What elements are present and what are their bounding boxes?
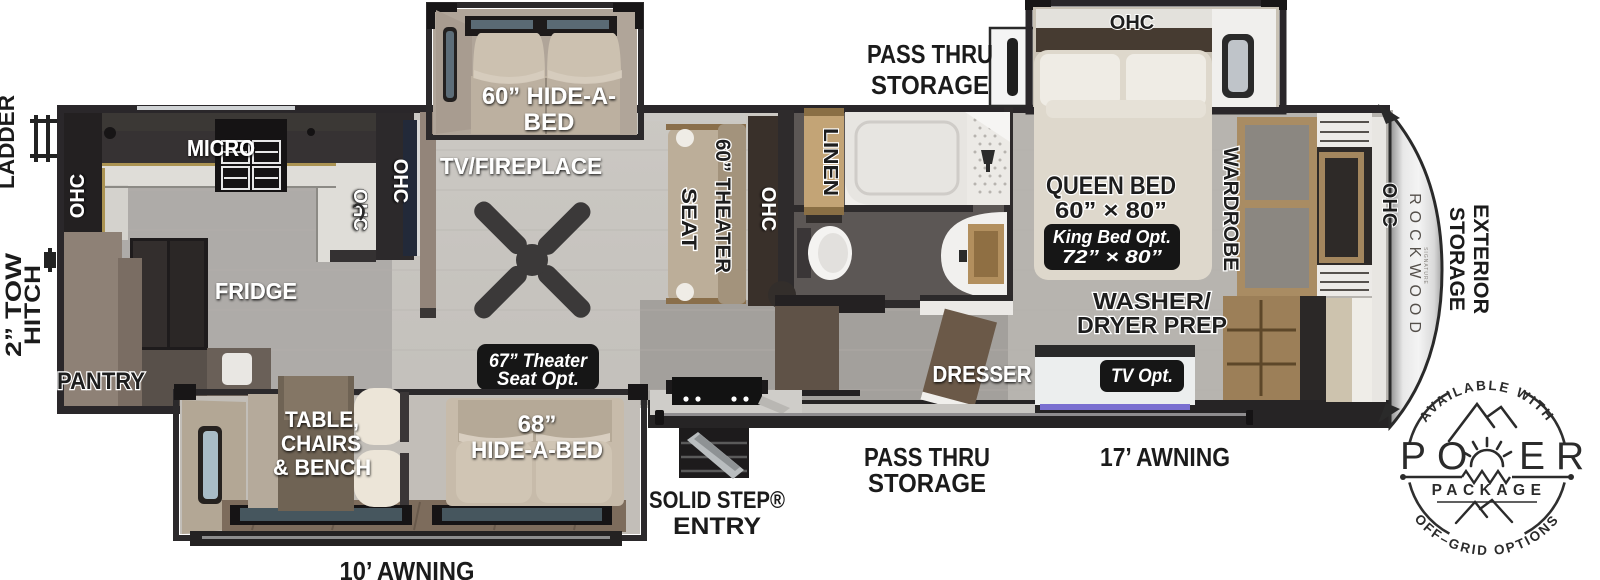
svg-text:King Bed Opt.: King Bed Opt.: [1053, 227, 1171, 247]
svg-text:ENTRY: ENTRY: [673, 513, 761, 540]
svg-text:TABLE,: TABLE,: [285, 407, 359, 432]
svg-text:SEAT: SEAT: [677, 188, 700, 250]
svg-text:MICRO: MICRO: [187, 135, 255, 161]
svg-text:STORAGE: STORAGE: [1445, 207, 1468, 311]
svg-text:STORAGE: STORAGE: [868, 468, 986, 498]
svg-text:& BENCH: & BENCH: [273, 455, 371, 480]
svg-text:TV Opt.: TV Opt.: [1111, 366, 1173, 387]
svg-text:68”: 68”: [518, 411, 557, 438]
svg-text:EXTERIOR: EXTERIOR: [1469, 204, 1492, 314]
svg-text:HITCH: HITCH: [20, 265, 45, 345]
svg-text:DRESSER: DRESSER: [933, 361, 1032, 387]
svg-text:60” × 80”: 60” × 80”: [1055, 197, 1167, 223]
svg-text:Seat Opt.: Seat Opt.: [497, 369, 579, 390]
svg-text:OHC: OHC: [389, 159, 411, 203]
svg-text:OHC: OHC: [1378, 183, 1400, 227]
svg-text:60” HIDE-A-: 60” HIDE-A-: [482, 83, 616, 110]
svg-text:60” THEATER: 60” THEATER: [711, 139, 734, 273]
svg-text:QUEEN BED: QUEEN BED: [1046, 172, 1176, 200]
svg-text:DRYER PREP: DRYER PREP: [1077, 312, 1227, 338]
svg-text:PASS THRU: PASS THRU: [867, 39, 993, 69]
svg-text:10’ AWNING: 10’ AWNING: [340, 556, 475, 580]
svg-text:FRIDGE: FRIDGE: [215, 278, 297, 304]
svg-text:BED: BED: [524, 109, 575, 136]
svg-text:SIGNATURE: SIGNATURE: [1422, 247, 1428, 285]
svg-text:SOLID STEP®: SOLID STEP®: [649, 487, 785, 514]
svg-text:OHC: OHC: [757, 187, 779, 231]
svg-text:STORAGE: STORAGE: [871, 70, 989, 100]
svg-text:ER: ER: [1519, 435, 1595, 478]
svg-text:TV/FIREPLACE: TV/FIREPLACE: [440, 153, 602, 179]
svg-text:CHAIRS: CHAIRS: [281, 431, 361, 456]
svg-text:WASHER/: WASHER/: [1093, 288, 1212, 314]
svg-text:OHC: OHC: [67, 174, 89, 218]
svg-text:72” × 80”: 72” × 80”: [1062, 247, 1162, 267]
svg-text:WARDROBE: WARDROBE: [1219, 147, 1242, 271]
svg-text:OHC: OHC: [1110, 12, 1154, 34]
svg-text:17’ AWNING: 17’ AWNING: [1100, 442, 1230, 472]
svg-text:OHC: OHC: [349, 189, 370, 232]
svg-text:ROCKWOOD: ROCKWOOD: [1406, 193, 1423, 339]
svg-text:HIDE-A-BED: HIDE-A-BED: [471, 437, 603, 464]
svg-text:PANTRY: PANTRY: [57, 368, 145, 395]
svg-text:PACKAGE: PACKAGE: [1432, 482, 1547, 499]
svg-text:LADDER: LADDER: [0, 95, 19, 189]
svg-text:LINEN: LINEN: [819, 128, 841, 196]
